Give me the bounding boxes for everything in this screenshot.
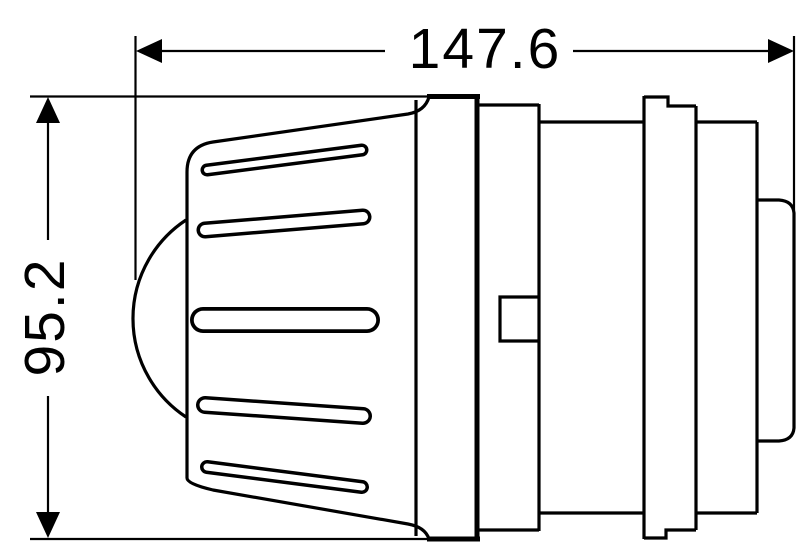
rib-slots	[203, 150, 367, 487]
arrowhead-up-icon	[36, 97, 60, 123]
rib-slot-2-inner	[205, 217, 363, 230]
technical-drawing-canvas: 147.6 95.2	[0, 0, 800, 546]
vertical-dimension-label: 95.2	[13, 258, 77, 377]
latch-detail	[500, 297, 539, 341]
collar-section	[479, 104, 539, 531]
flange-top-step	[644, 97, 696, 106]
flange-bottom-step	[644, 530, 696, 538]
arrowhead-down-icon	[36, 512, 60, 538]
lens-dome-arc	[133, 220, 186, 417]
arrowhead-right-icon	[768, 39, 794, 63]
main-barrel	[539, 122, 644, 513]
arrowhead-left-icon	[136, 39, 162, 63]
rear-end-cap	[757, 200, 794, 441]
mounting-flange	[644, 96, 696, 539]
rear-barrel	[696, 122, 757, 513]
horizontal-dimension-label: 147.6	[409, 17, 562, 81]
component-dimension-drawing: 147.6 95.2	[0, 0, 800, 546]
component-outline	[133, 95, 794, 541]
rib-slot-1-inner	[207, 150, 362, 170]
